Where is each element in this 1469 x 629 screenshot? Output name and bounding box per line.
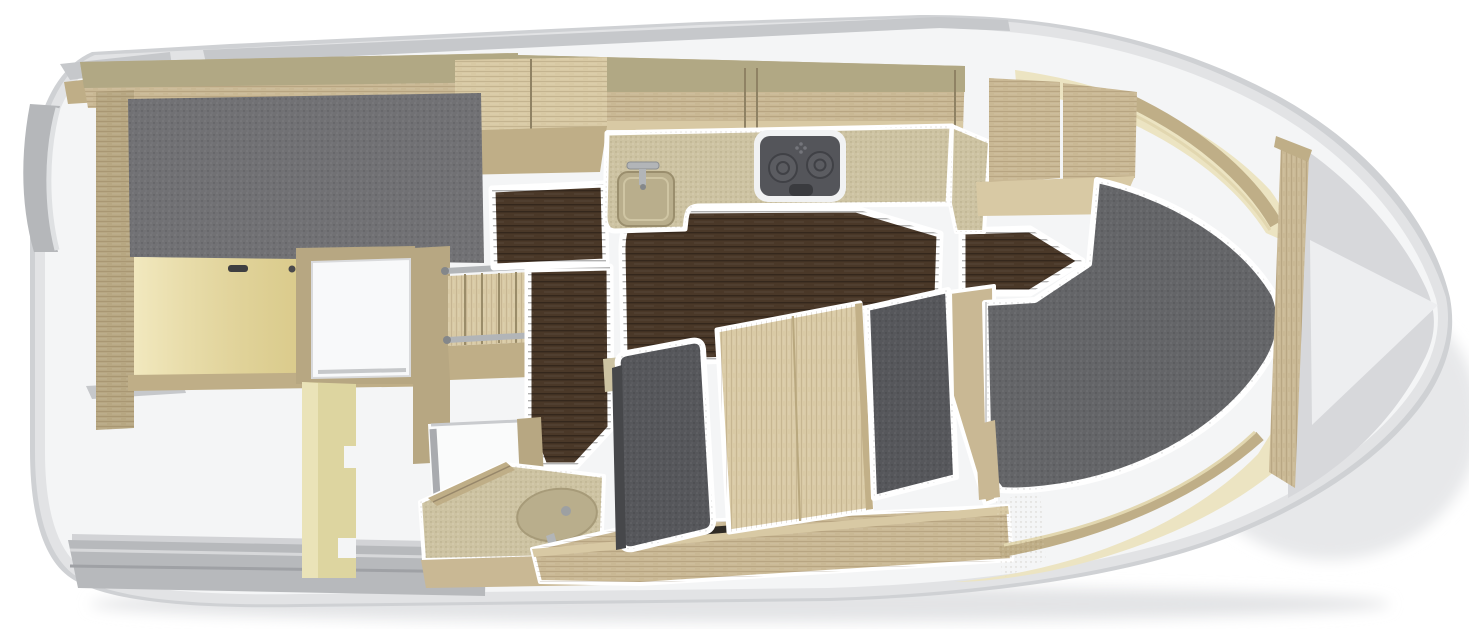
rail-cap <box>441 267 449 275</box>
companionway-landing <box>448 342 532 380</box>
stove-handle <box>789 184 813 196</box>
floorplan-render <box>0 0 1469 629</box>
wardrobe-locker <box>296 246 415 384</box>
dinette-seat-left-texture <box>618 341 713 550</box>
rail-cap <box>443 336 451 344</box>
galley-counter-return-texture <box>950 126 990 232</box>
sink-faucet-spout <box>640 184 646 190</box>
locker-interior <box>312 259 410 378</box>
dinette-seat-right-texture <box>867 290 956 498</box>
cockpit-partition <box>302 382 356 578</box>
stove-knob-dot <box>803 146 807 150</box>
boat-floorplan-canvas <box>0 0 1469 629</box>
berth-handle <box>228 265 248 272</box>
entry-floor-grain <box>492 184 606 267</box>
bath-sink-drain <box>561 506 571 516</box>
stove-knob-dot <box>795 146 799 150</box>
partition-notch <box>344 446 356 468</box>
stove <box>754 130 846 202</box>
locker-inner-shadow <box>318 370 406 372</box>
stove-burner-left <box>769 154 797 182</box>
sink-faucet-stem <box>639 169 646 185</box>
partition-wall-face <box>302 382 318 578</box>
partition-notch <box>338 538 356 558</box>
aft-cabin-mattress-texture <box>128 93 484 263</box>
bow-cabinet-right-grain <box>1063 83 1137 179</box>
aft-berth-panel-shading <box>134 257 297 377</box>
stove-knob-dot <box>799 150 803 154</box>
sink-faucet-bar <box>627 162 659 169</box>
berth-latch-dot <box>289 266 296 273</box>
stove-knob-dot <box>799 142 803 146</box>
stove-burner-right <box>807 152 833 178</box>
bow-cabinet-left-grain <box>989 78 1060 184</box>
